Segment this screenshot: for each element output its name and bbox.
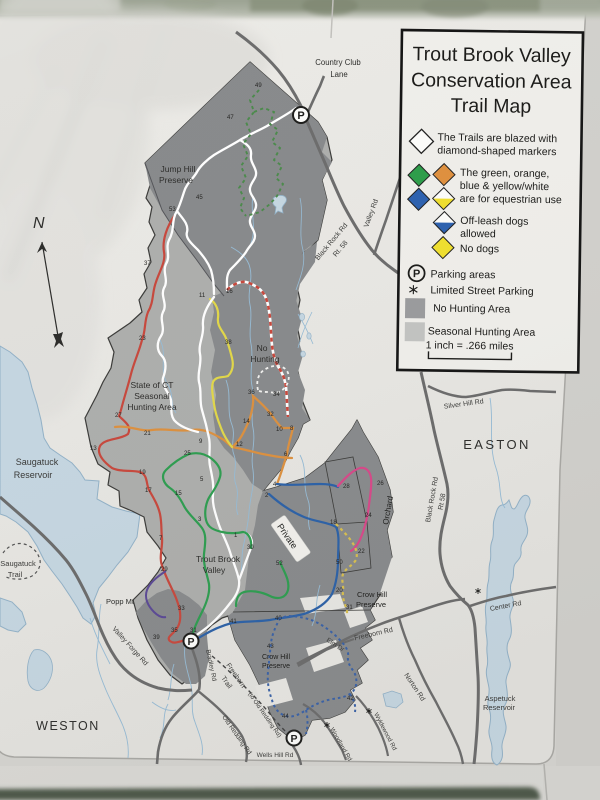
svg-text:47: 47 [227,115,234,121]
svg-text:Hunting: Hunting [250,354,280,364]
svg-text:Trout Brook Valley: Trout Brook Valley [412,43,571,67]
svg-text:P: P [413,268,421,280]
svg-text:41: 41 [230,619,237,625]
svg-text:45: 45 [196,195,203,201]
svg-text:Seasonal Hunting Area: Seasonal Hunting Area [428,325,536,339]
svg-text:Hunting Area: Hunting Area [127,402,176,412]
svg-text:11: 11 [199,293,206,299]
svg-text:24: 24 [365,513,372,519]
svg-text:37: 37 [144,261,151,267]
svg-text:EASTON: EASTON [463,437,531,452]
svg-text:25: 25 [184,451,191,457]
svg-text:Preserve: Preserve [356,600,386,609]
svg-text:49: 49 [255,83,262,89]
svg-text:Lane: Lane [330,70,347,79]
svg-text:No: No [257,343,268,353]
svg-text:Saugatuck: Saugatuck [0,559,36,568]
svg-text:16: 16 [226,289,233,295]
svg-text:Wells Hill Rd: Wells Hill Rd [257,752,294,759]
svg-text:Trail: Trail [8,570,23,579]
svg-text:P: P [290,733,297,745]
svg-text:36: 36 [248,390,255,396]
svg-text:28: 28 [343,484,350,490]
svg-text:WESTON: WESTON [36,719,100,733]
svg-text:17: 17 [145,488,152,494]
svg-text:18: 18 [330,520,337,526]
svg-text:34: 34 [273,392,280,398]
svg-text:Reservoir: Reservoir [14,470,53,480]
svg-text:Parking areas: Parking areas [431,268,496,281]
svg-text:Conservation Area: Conservation Area [411,69,572,93]
svg-text:32: 32 [267,412,274,418]
svg-text:are for equestrian use: are for equestrian use [460,193,562,206]
svg-text:allowed: allowed [460,228,496,240]
svg-text:40: 40 [275,616,282,622]
svg-text:29: 29 [161,567,168,573]
svg-text:20: 20 [336,588,343,594]
svg-text:42: 42 [347,696,354,702]
svg-text:52: 52 [276,561,283,567]
svg-text:diamond-shaped markers: diamond-shaped markers [437,145,556,159]
svg-text:Trout Brook: Trout Brook [196,554,241,564]
svg-text:14: 14 [243,419,250,425]
svg-text:21: 21 [144,431,151,437]
svg-text:N: N [33,215,45,232]
svg-text:33: 33 [178,606,185,612]
svg-text:27: 27 [115,413,122,419]
svg-text:43: 43 [267,644,274,650]
svg-text:44: 44 [282,714,289,720]
svg-text:No dogs: No dogs [460,243,499,256]
svg-text:35: 35 [171,628,178,634]
svg-text:Saugatuck: Saugatuck [16,457,59,467]
svg-text:12: 12 [236,442,243,448]
svg-text:13: 13 [90,446,97,452]
svg-text:Valley: Valley [203,565,226,575]
svg-text:15: 15 [175,491,182,497]
svg-text:30: 30 [247,545,254,551]
svg-text:26: 26 [377,481,384,487]
svg-text:Reservoir: Reservoir [483,703,516,712]
svg-text:P: P [297,110,304,122]
svg-text:19: 19 [139,470,146,476]
svg-text:1 inch = .266 miles: 1 inch = .266 miles [426,339,514,352]
svg-text:blue & yellow/white: blue & yellow/white [460,180,550,193]
svg-text:38: 38 [225,340,232,346]
svg-text:31: 31 [346,605,353,611]
svg-text:23: 23 [139,336,146,342]
svg-text:Crow Hill: Crow Hill [262,654,290,661]
svg-text:Preserve: Preserve [262,663,290,670]
svg-text:Trail Map: Trail Map [451,95,532,118]
svg-text:10: 10 [276,427,283,433]
svg-text:50: 50 [336,560,343,566]
svg-text:The Trails are blazed with: The Trails are blazed with [437,132,557,146]
svg-text:Popp Mt: Popp Mt [106,597,135,606]
svg-text:Jump Hill: Jump Hill [161,164,196,174]
svg-text:22: 22 [358,549,365,555]
svg-text:Preserve: Preserve [159,175,193,185]
svg-text:No Hunting Area: No Hunting Area [433,302,510,315]
svg-text:Off-leash dogs: Off-leash dogs [460,215,528,228]
svg-text:Crow Hill: Crow Hill [357,590,387,599]
svg-text:Aspetuck: Aspetuck [485,694,516,703]
svg-text:State of CT: State of CT [131,380,174,390]
svg-text:The green, orange,: The green, orange, [460,167,549,180]
svg-text:53: 53 [169,207,176,213]
svg-text:P: P [187,636,194,648]
svg-text:Country Club: Country Club [315,58,361,67]
svg-text:39: 39 [153,635,160,641]
svg-text:Limited Street Parking: Limited Street Parking [430,284,534,297]
svg-text:Seasonal: Seasonal [134,391,170,401]
